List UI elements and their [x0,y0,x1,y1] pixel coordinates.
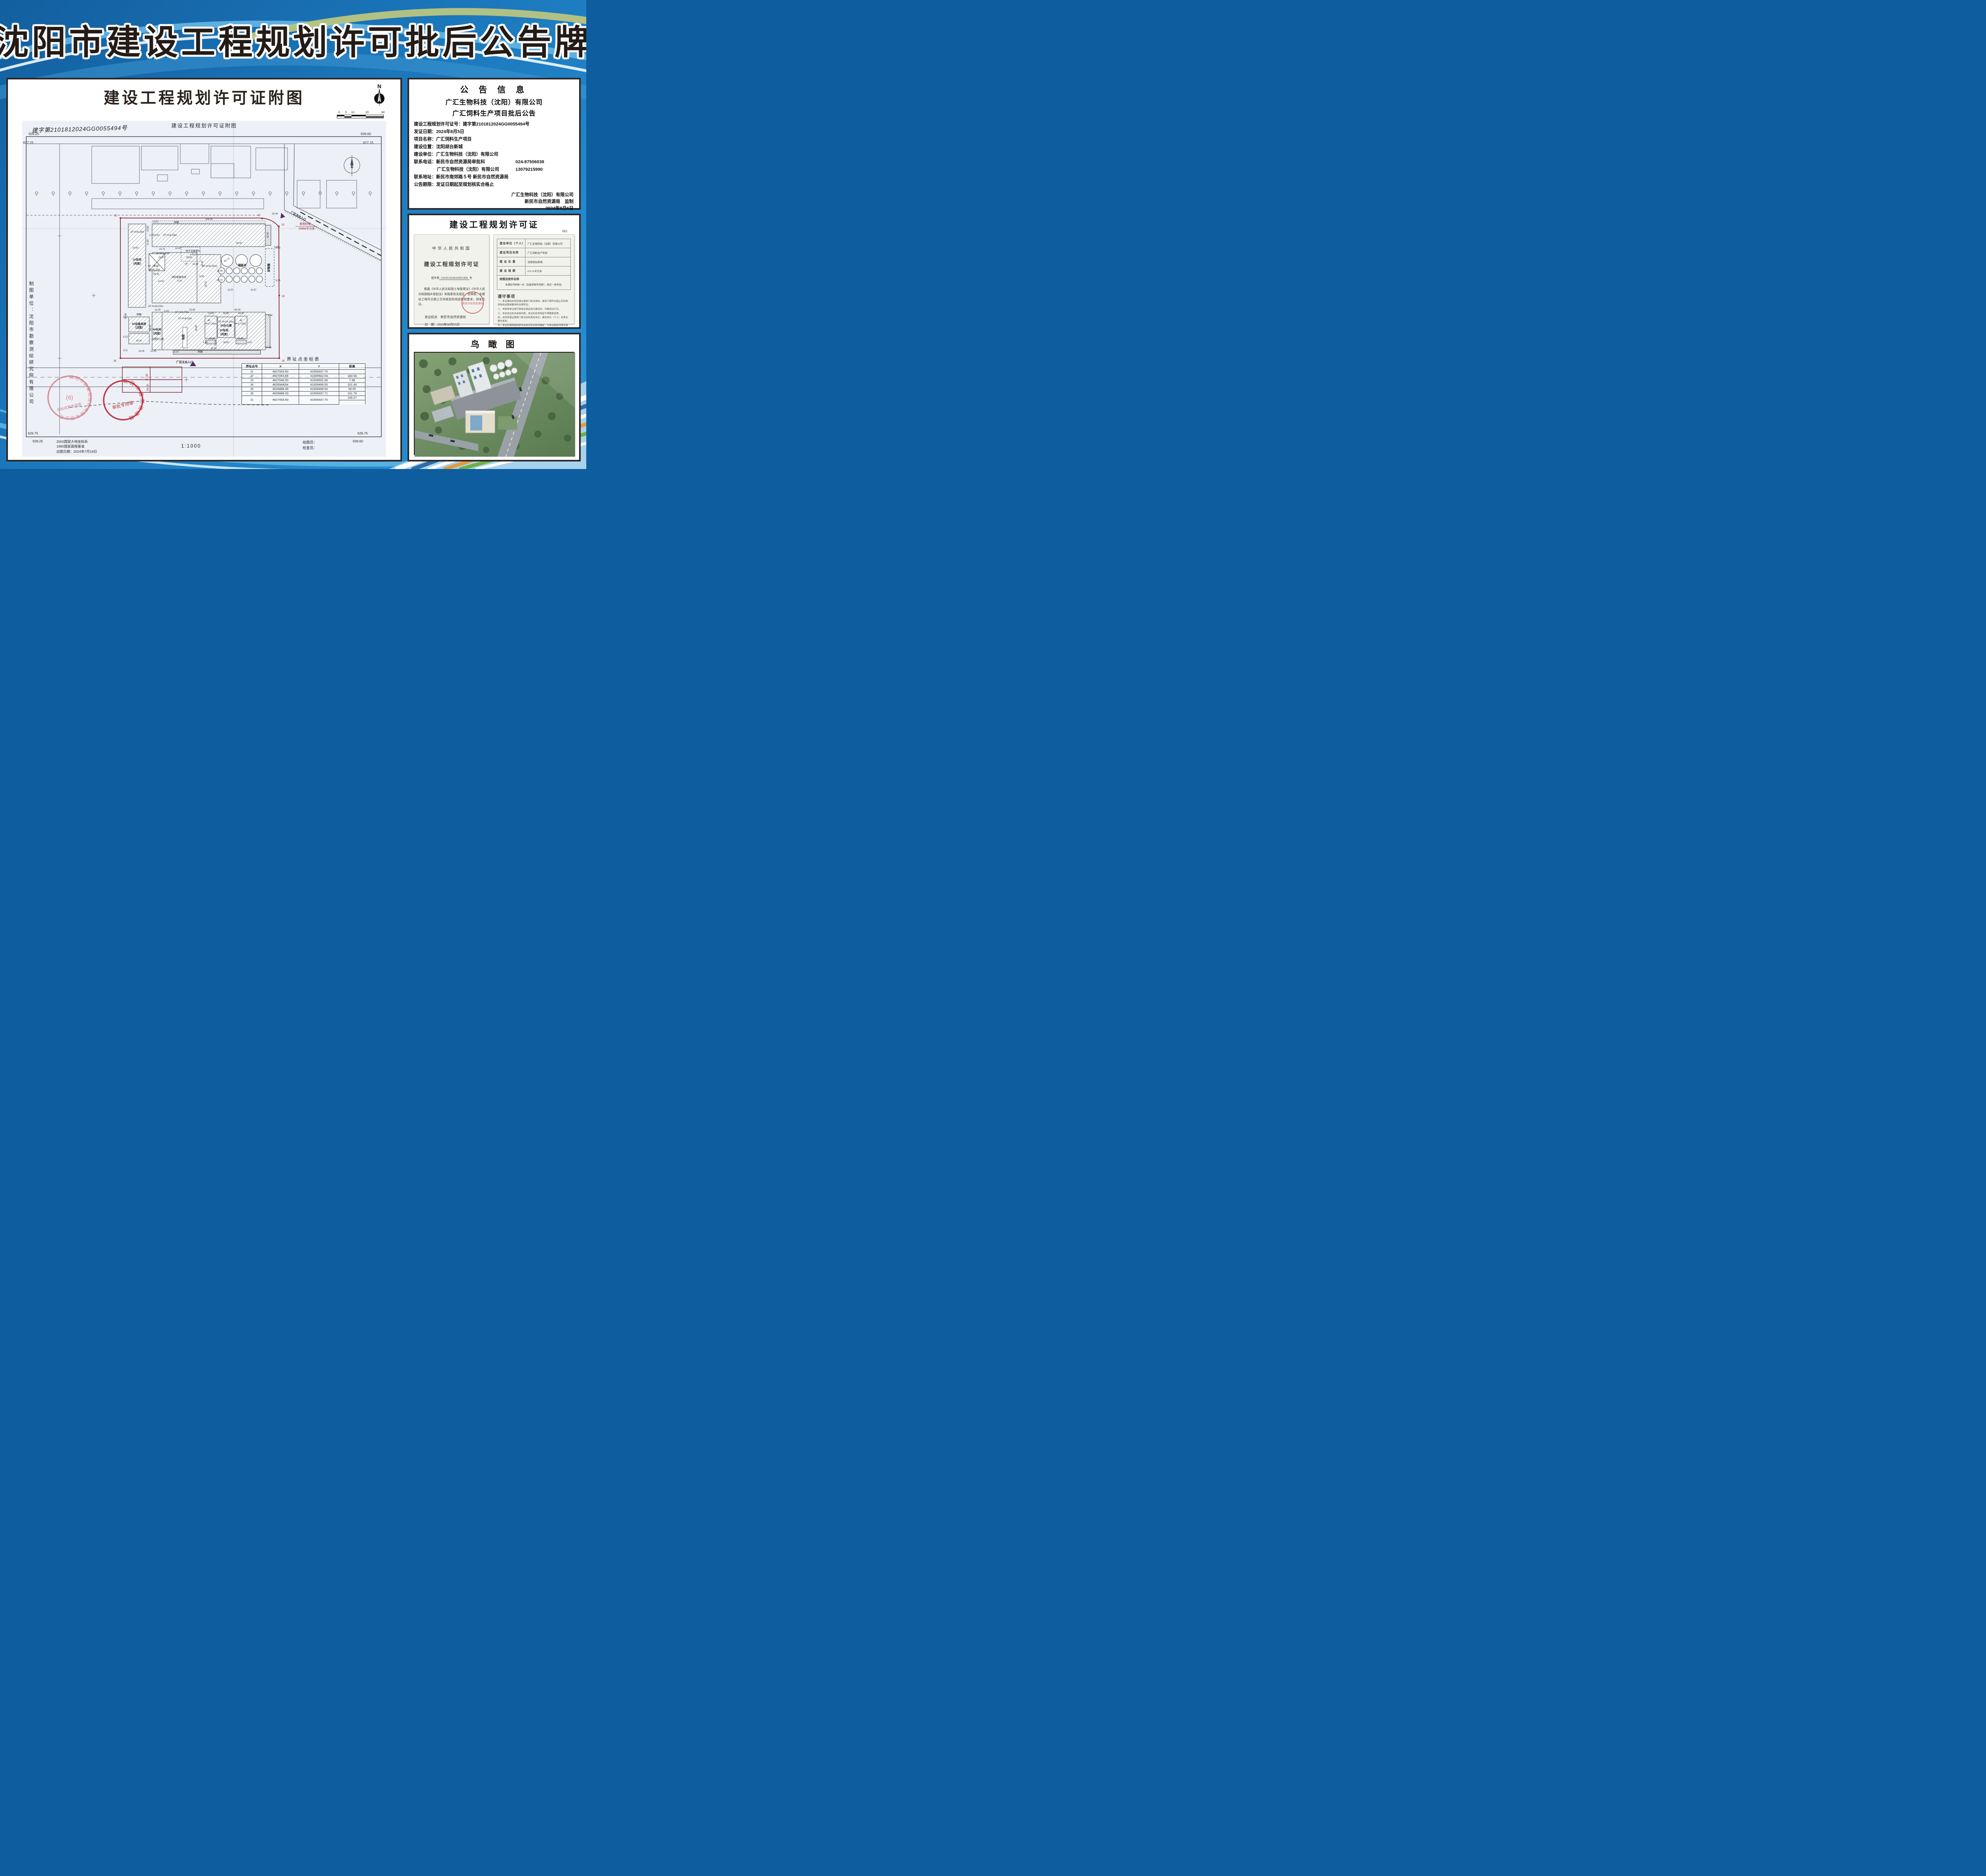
svg-text:4F: 4F [207,319,210,322]
svg-text:1F H=5.70m: 1F H=5.70m [175,311,189,314]
svg-text:4.04: 4.04 [268,315,272,317]
site-plan-buildings [128,221,274,354]
datum-note: 2000国家大地坐标系 [56,439,97,444]
rule-item: 五、本证所需附图及附件由发证机关依法确定，与本证具有同等法律效力。 [498,324,570,331]
svg-text:13.68: 13.68 [265,347,272,349]
detail-row: 建 设 位 置沈阳胡台新城 [497,257,570,266]
rule-item: 三、未经发证机关审核同意，本证的各项规定不得随意变更。 [498,312,570,316]
svg-text:H=40.20m: H=40.20m [149,268,160,271]
svg-text:23.73: 23.73 [159,248,165,251]
svg-text:10.06: 10.06 [216,270,223,272]
svg-text:10.40: 10.40 [237,338,243,340]
aerial-view-image [414,352,574,455]
permit-panel-title: 建设工程规划许可证 [409,218,579,230]
svg-text:测绘成果专用章: 测绘成果专用章 [56,402,82,412]
aerial-view-panel: 鸟 瞰 图 [408,333,581,461]
svg-text:10.57: 10.57 [227,289,234,291]
country-label: 中华人民共和国 [414,245,489,251]
attached-drawing-panel: 建设工程规划许可证附图 N 0 5 10 20 30 [6,78,402,461]
svg-text:12.00: 12.00 [215,340,217,346]
scale-tick: 0 [338,110,340,114]
svg-text:雨棚: 雨棚 [198,350,203,353]
svg-text:26884平方米: 26884平方米 [299,227,315,230]
svg-text:0.15: 0.15 [164,310,169,313]
svg-text:厂区主出入口: 厂区主出入口 [176,360,193,364]
svg-text:509.25: 509.25 [33,439,43,443]
footer-supervisor: 新民市自然资源局 监制 [409,199,574,205]
scale-tick: 20 [365,110,369,114]
svg-text:15.20: 15.20 [158,257,164,259]
svg-text:J6: J6 [113,360,116,363]
svg-text:1F H=8.20m: 1F H=8.20m [178,317,192,320]
svg-text:6.55: 6.55 [199,276,204,278]
scale-bar: 0 5 10 20 30 [337,110,396,120]
svg-text:626.75: 626.75 [357,431,368,435]
detail-row: 建 设 规 模879.35平方米 [497,266,570,276]
svg-text:509.60: 509.60 [361,132,371,136]
svg-text:H=17.25m: H=17.25m [235,322,246,325]
svg-text:10.57: 10.57 [250,289,257,291]
svg-text:14.00: 14.00 [158,280,164,283]
svg-text:J3: J3 [281,224,284,226]
svg-text:24.00: 24.00 [132,247,139,249]
svg-text:32.80: 32.80 [189,309,195,311]
svg-text:1F H=5.80m: 1F H=5.80m [156,252,170,255]
svg-text:2F H=30.20m: 2F H=30.20m [148,305,163,308]
tree-symbols [35,192,371,196]
svg-text:用地红线: 用地红线 [299,222,311,226]
svg-text:14.40: 14.40 [208,313,214,315]
svg-text:92.80: 92.80 [211,347,217,350]
datum-note: 1985国家高程基准 [56,444,97,449]
issuer-block: 发证机关 新民市自然资源局 日 期 2024年08月05日 [425,313,489,328]
coordinate-table-title: 界址点坐标表 [241,356,365,362]
svg-text:28.80: 28.80 [186,257,192,259]
svg-text:卸粮棚: 卸粮棚 [267,264,270,272]
svg-text:6F H=42.90m: 6F H=42.90m [202,265,217,268]
svg-text:3#办公楼: 3#办公楼 [220,324,232,327]
datum-note: 出图日期：2024年7月18日 [56,449,97,454]
project-announcement-line: 广汇饲料生产项目批后公告 [409,108,579,118]
svg-text:509.60: 509.60 [353,439,363,443]
staff-signatures: 绘图员： 检查员： [303,440,317,451]
datum-notes: 2000国家大地坐标系 1985国家高程基准 出图日期：2024年7月18日 [56,439,97,454]
silo-circles [218,255,263,282]
checker-label: 检查员： [303,446,317,451]
company-name: 广汇生物科技（沈阳）有限公司 [409,97,579,106]
svg-text:-4.60m: -4.60m [189,254,197,256]
svg-text:(6): (6) [66,394,73,401]
announcement-title: 公 告 信 息 [409,83,579,95]
compliance-rules: 遵守事项 一、本证是经自然资源主管部门依法审核，建设工程符合国土空间规划和用途管… [498,293,570,331]
announcement-info-panel: 公 告 信 息 广汇生物科技（沈阳）有限公司 广汇饲料生产项目批后公告 建设工程… [408,78,581,210]
svg-text:4.00: 4.00 [247,342,252,344]
field-issue-date: 发证日期：2024年8月5日 [414,128,575,136]
drafter-label: 绘图员： [303,440,317,446]
svg-text:10.20: 10.20 [216,279,223,282]
detail-row: 建设单位（个人）广汇生物科技（沈阳）有限公司 [497,239,570,248]
svg-text:新民市自然资源局: 新民市自然资源局 [462,301,483,305]
table-row: J14627053.6041509337.70 [242,370,365,374]
svg-text:（戊类）: （戊类） [133,326,145,329]
svg-text:14.00: 14.00 [175,247,181,250]
svg-text:627.15: 627.15 [363,141,373,145]
svg-text:1F H=6.20m: 1F H=6.20m [131,231,144,234]
svg-text:4F: 4F [240,319,242,322]
svg-text:104.00: 104.00 [205,218,213,221]
svg-text:地磅: 地磅 [182,334,185,340]
svg-text:10.00: 10.00 [153,234,160,237]
svg-text:8.35: 8.35 [276,280,280,282]
svg-text:雨棚: 雨棚 [174,221,179,224]
table-header-row: 界址点号 X Y 距离 [242,364,365,370]
svg-text:29.20: 29.20 [153,273,159,276]
svg-text:审批专用章: 审批专用章 [112,400,134,411]
field-phone-1: 联系电话：新民市自然资源局审批科024-87506038 [414,158,575,166]
svg-text:60.00: 60.00 [236,242,242,245]
svg-text:9.03: 9.03 [276,247,280,249]
detail-row: 建设项目名称广汇饲料生产项目 [497,248,570,257]
svg-text:32.60: 32.60 [267,232,269,238]
svg-text:11.00: 11.00 [151,350,156,353]
field-address: 联系地址：新民市南郊路５号 新民市自然资源局 [414,174,575,181]
aerial-view-title: 鸟 瞰 图 [409,338,579,350]
svg-text:509.25: 509.25 [29,132,39,136]
svg-text:6.11: 6.11 [123,349,128,352]
survey-institute-stamp: 沈阳市勘察测绘研究院有限公司 (6) 测绘成果专用章 [45,373,94,422]
svg-text:设置防火墙: 设置防火墙 [152,338,164,341]
boundary-coordinate-table: 界址点坐标表 界址点号 X Y 距离 J14627053.6041509337.… [241,356,365,405]
field-location: 建设位置：沈阳胡台新城 [414,143,575,151]
svg-text:11.00: 11.00 [155,309,161,311]
svg-text:北: 北 [351,165,354,168]
issuer-red-stamp: 新民市自然资源局 [460,290,485,315]
svg-text:6.12: 6.12 [123,316,128,318]
field-period: 公告期限：发证日期起至规划核实合格止 [414,181,575,189]
svg-text:43.00: 43.00 [136,340,142,342]
svg-text:36.70: 36.70 [150,325,152,331]
svg-text:沈阳市勘察测绘研究院有限公司: 沈阳市勘察测绘研究院有限公司 [59,374,93,421]
svg-text:J4: J4 [282,295,285,298]
field-permit-no: 建设工程规划许可证号：建字第2101812024GG0055494号 [414,121,575,128]
svg-text:14.40: 14.40 [238,313,244,315]
announcement-fields: 建设工程规划许可证号：建字第2101812024GG0055494号 发证日期：… [414,121,575,189]
svg-text:（丙类）: （丙类） [151,332,162,335]
svg-text:消防救援场地: 消防救援场地 [171,276,186,279]
svg-text:6.15: 6.15 [123,336,128,338]
svg-text:1F H=8.20m: 1F H=8.20m [163,234,177,237]
north-arrow: N [365,83,393,109]
svg-text:J1: J1 [114,214,117,217]
notice-board: 沈阳市建设工程规划许可批后公告牌 建设工程规划许可证附图 N 0 5 10 20… [0,0,586,469]
rule-item: 四、自然资源主管部门依法有权查验本证，建设单位（个人）有责任提交查验。 [498,316,570,323]
svg-text:（丙类）: （丙类） [218,332,230,336]
svg-text:16.60: 16.60 [223,313,229,315]
svg-text:4#车间: 4#车间 [153,328,161,331]
svg-text:钢板仓: 钢板仓 [238,263,247,267]
aerial-rendering [415,353,575,457]
svg-text:16.44: 16.44 [272,213,278,215]
attached-drawing-title: 建设工程规划许可证附图 [8,85,400,108]
permit-detail-table: 建设单位（个人）广汇生物科技（沈阳）有限公司 建设项目名称广汇饲料生产项目 建 … [497,239,571,290]
scale-tick: 5 [345,110,347,114]
svg-text:9.20: 9.20 [177,280,182,282]
svg-text:60.00: 60.00 [234,309,241,311]
svg-text:16.60: 16.60 [223,342,229,344]
svg-text:18.70: 18.70 [205,281,207,288]
footer-date: 2024年8月6日 [409,205,574,212]
scale-tick: 30 [381,110,384,114]
rule-item: 一、本证是经自然资源主管部门依法审核，建设工程符合国土空间规划和用途管制要求的法… [498,300,570,307]
permit-detail-page: 建设单位（个人）广汇生物科技（沈阳）有限公司 建设项目名称广汇饲料生产项目 建 … [493,234,574,324]
footer-company: 广汇生物科技（沈阳）有限公司 [409,192,574,199]
page-title: 沈阳市建设工程规划许可批后公告牌 [0,14,586,64]
svg-text:新民市自然资源局: 新民市自然资源局 [123,378,145,422]
attachment-block: 附图及附件名称 本通知书附图一份（加盖审图专用章），图文一体有效。 [497,276,570,290]
field-builder: 建设单位：广汇生物科技（沈阳）有限公司 [414,151,575,158]
svg-text:24.00: 24.00 [147,384,149,391]
north-letter: N [377,83,381,89]
svg-text:5F H=20.16m: 5F H=20.16m [218,320,234,323]
field-project-name: 项目名称：广汇饲料生产项目 [414,136,575,143]
scale-tick: 10 [351,110,354,114]
map-scale: 1:1000 [181,443,201,449]
permit-no-label: NO. [562,230,568,233]
planning-permit-panel: 建设工程规划许可证 NO. 中华人民共和国 建设工程规划许可证 建字第21018… [408,214,581,329]
field-phone-2: 广汇生物科技（沈阳）有限公司13079215990 [414,166,575,174]
svg-text:H=17.25m: H=17.25m [205,322,216,325]
svg-text:11.60: 11.60 [147,239,149,245]
svg-text:627.15: 627.15 [23,141,33,145]
svg-text:2#车间: 2#车间 [220,328,228,332]
page-banner: 沈阳市建设工程规划许可批后公告牌 [0,6,586,72]
rule-item: 二、未取得本证或不按本证规定进行建设的，均属违法行为。 [498,308,570,311]
natural-resources-bureau-stamp: 新民市自然资源局 审批专用章 [101,378,145,423]
svg-text:1#车间: 1#车间 [133,258,141,261]
svg-text:J2: J2 [257,214,261,217]
drawing-unit-vertical-text: 制图单位：沈阳市勘察测绘研究院有限公司 [28,281,34,437]
scanned-site-plan-sheet: 建设工程规划许可证附图 建字第2101812024GG0055494号 [22,121,386,457]
svg-text:6F（夹层）: 6F（夹层） [148,264,161,268]
permit-serial: 建字第2101812024GG0055494号 [414,276,489,280]
svg-text:6.00: 6.00 [153,221,158,223]
svg-text:10.60: 10.60 [147,226,149,232]
permit-title: 建设工程规划许可证 [414,260,489,268]
svg-text:36.60: 36.60 [195,325,198,331]
svg-text:22.60: 22.60 [192,263,199,266]
svg-text:27.00: 27.00 [146,374,149,381]
svg-text:6.00: 6.00 [174,351,179,353]
svg-text:地下设备基坑: 地下设备基坑 [185,249,200,253]
svg-text:10.40: 10.40 [209,338,215,340]
announcement-footer: 广汇生物科技（沈阳）有限公司 新民市自然资源局 监制 2024年8月6日 [409,192,574,212]
svg-text:厂区次出入口: 厂区次出入口 [290,210,307,222]
svg-text:5#设备库房: 5#设备库房 [132,322,146,326]
svg-text:14.05: 14.05 [138,350,145,353]
svg-text:（丙类）: （丙类） [131,262,143,265]
svg-text:4.00: 4.00 [203,342,208,344]
svg-text:雨棚: 雨棚 [137,313,141,316]
permit-cover-page: 中华人民共和国 建设工程规划许可证 建字第2101812024GG0055494… [414,234,489,324]
